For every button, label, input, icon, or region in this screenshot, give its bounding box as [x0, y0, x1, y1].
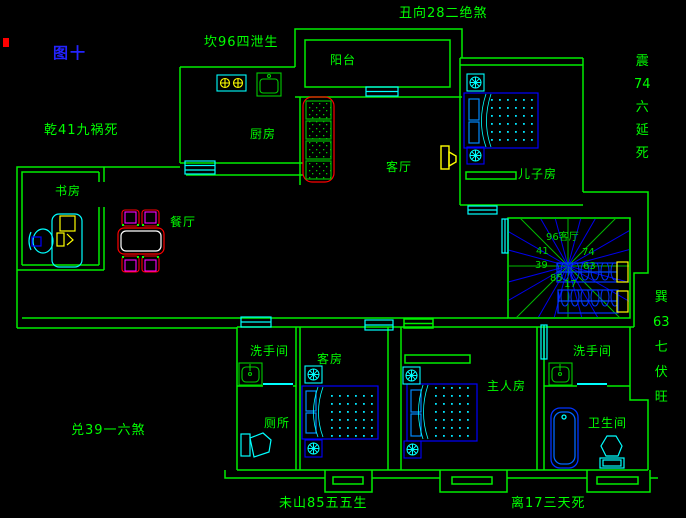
compass-number: 85	[550, 274, 563, 284]
fengshui-label-northwest: 乾41九祸死	[44, 124, 119, 137]
fengshui-label-northeast: 丑向28二绝煞	[399, 7, 488, 20]
sofa-icon	[303, 97, 334, 182]
fengshui-label-south: 离17三天死	[511, 497, 586, 510]
room-label-washroom-right: 洗手间	[573, 345, 612, 357]
room-label-washroom-left: 洗手间	[250, 345, 289, 357]
dining-chair-icons	[122, 210, 159, 272]
bed-icon-master-room	[407, 384, 477, 441]
toilet-icon-left	[241, 433, 271, 457]
tv-icon	[441, 146, 456, 169]
dining-table-icon	[118, 228, 164, 254]
fengshui-label-southeast: 巽 63 七 伏 旺	[653, 291, 670, 404]
sink-icon-right	[549, 363, 572, 385]
fengshui-southeast-char: 巽	[655, 291, 668, 304]
room-label-study: 书房	[55, 185, 81, 197]
fengshui-label-west: 兑39一六煞	[71, 424, 146, 437]
window-icons	[185, 87, 607, 384]
compass-number: 63	[583, 262, 596, 272]
bed-icon-guest-room	[302, 386, 378, 439]
floorplan-drawing	[0, 0, 686, 518]
room-label-balcony: 阳台	[330, 54, 356, 66]
fengshui-east-char: 震	[636, 55, 649, 68]
compass-number: 17	[564, 280, 577, 290]
room-label-master-room: 主人房	[487, 380, 526, 392]
fengshui-southeast-char: 七	[655, 341, 668, 354]
bed-icon-sons-room	[464, 93, 538, 148]
fengshui-label-southwest: 未山85五五生	[279, 497, 368, 510]
stove-icon	[217, 75, 246, 91]
fengshui-east-char: 死	[636, 147, 649, 160]
sink-icon-left	[239, 363, 262, 385]
fengshui-east-char: 六	[636, 101, 649, 114]
kitchen-sink-icon	[257, 73, 281, 96]
floorplan-canvas: 图十 坎96四泄生 丑向28二绝煞 乾41九祸死 兑39一六煞 未山85五五生 …	[0, 0, 686, 518]
red-marker	[3, 38, 9, 47]
computer-icon	[57, 216, 75, 246]
bathtub-icon	[551, 408, 578, 468]
compass-number: 41	[536, 247, 549, 257]
fengshui-southeast-char: 伏	[655, 366, 668, 379]
room-label-kitchen: 厨房	[250, 128, 276, 140]
fengshui-east-char: 延	[636, 124, 649, 137]
room-label-sons-room: 儿子房	[518, 168, 557, 180]
fengshui-label-east: 震 74 六 延 死	[634, 55, 651, 160]
fengshui-east-char: 74	[634, 78, 651, 91]
room-label-dining: 餐厅	[170, 216, 196, 228]
compass-number: 74	[582, 248, 595, 258]
toilet-icon-right	[600, 436, 624, 468]
room-label-bathroom: 卫生间	[588, 417, 627, 429]
room-label-guest-room: 客房	[317, 353, 343, 365]
fengshui-southeast-char: 63	[653, 316, 670, 329]
compass-sector-label: 96客厅	[546, 233, 579, 243]
fengshui-label-north: 坎96四泄生	[204, 36, 279, 49]
compass-number: 39	[535, 261, 548, 271]
stair-landing	[617, 262, 628, 312]
room-label-toilet-room: 厕所	[264, 417, 290, 429]
fengshui-southeast-char: 旺	[655, 391, 668, 404]
room-label-living: 客厅	[386, 161, 412, 173]
figure-title: 图十	[53, 46, 87, 61]
